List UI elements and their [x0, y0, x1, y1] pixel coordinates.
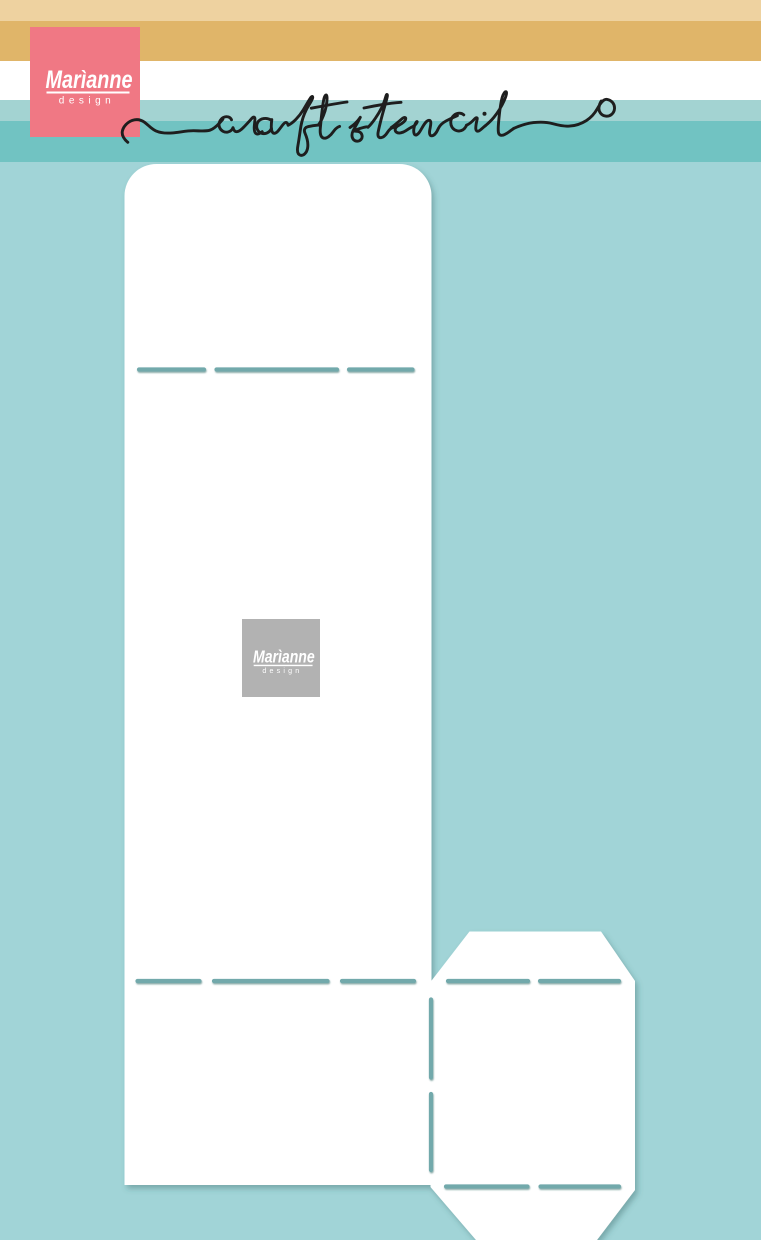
- svg-text:design: design: [262, 667, 302, 675]
- svg-text:Marìanne: Marìanne: [253, 646, 315, 666]
